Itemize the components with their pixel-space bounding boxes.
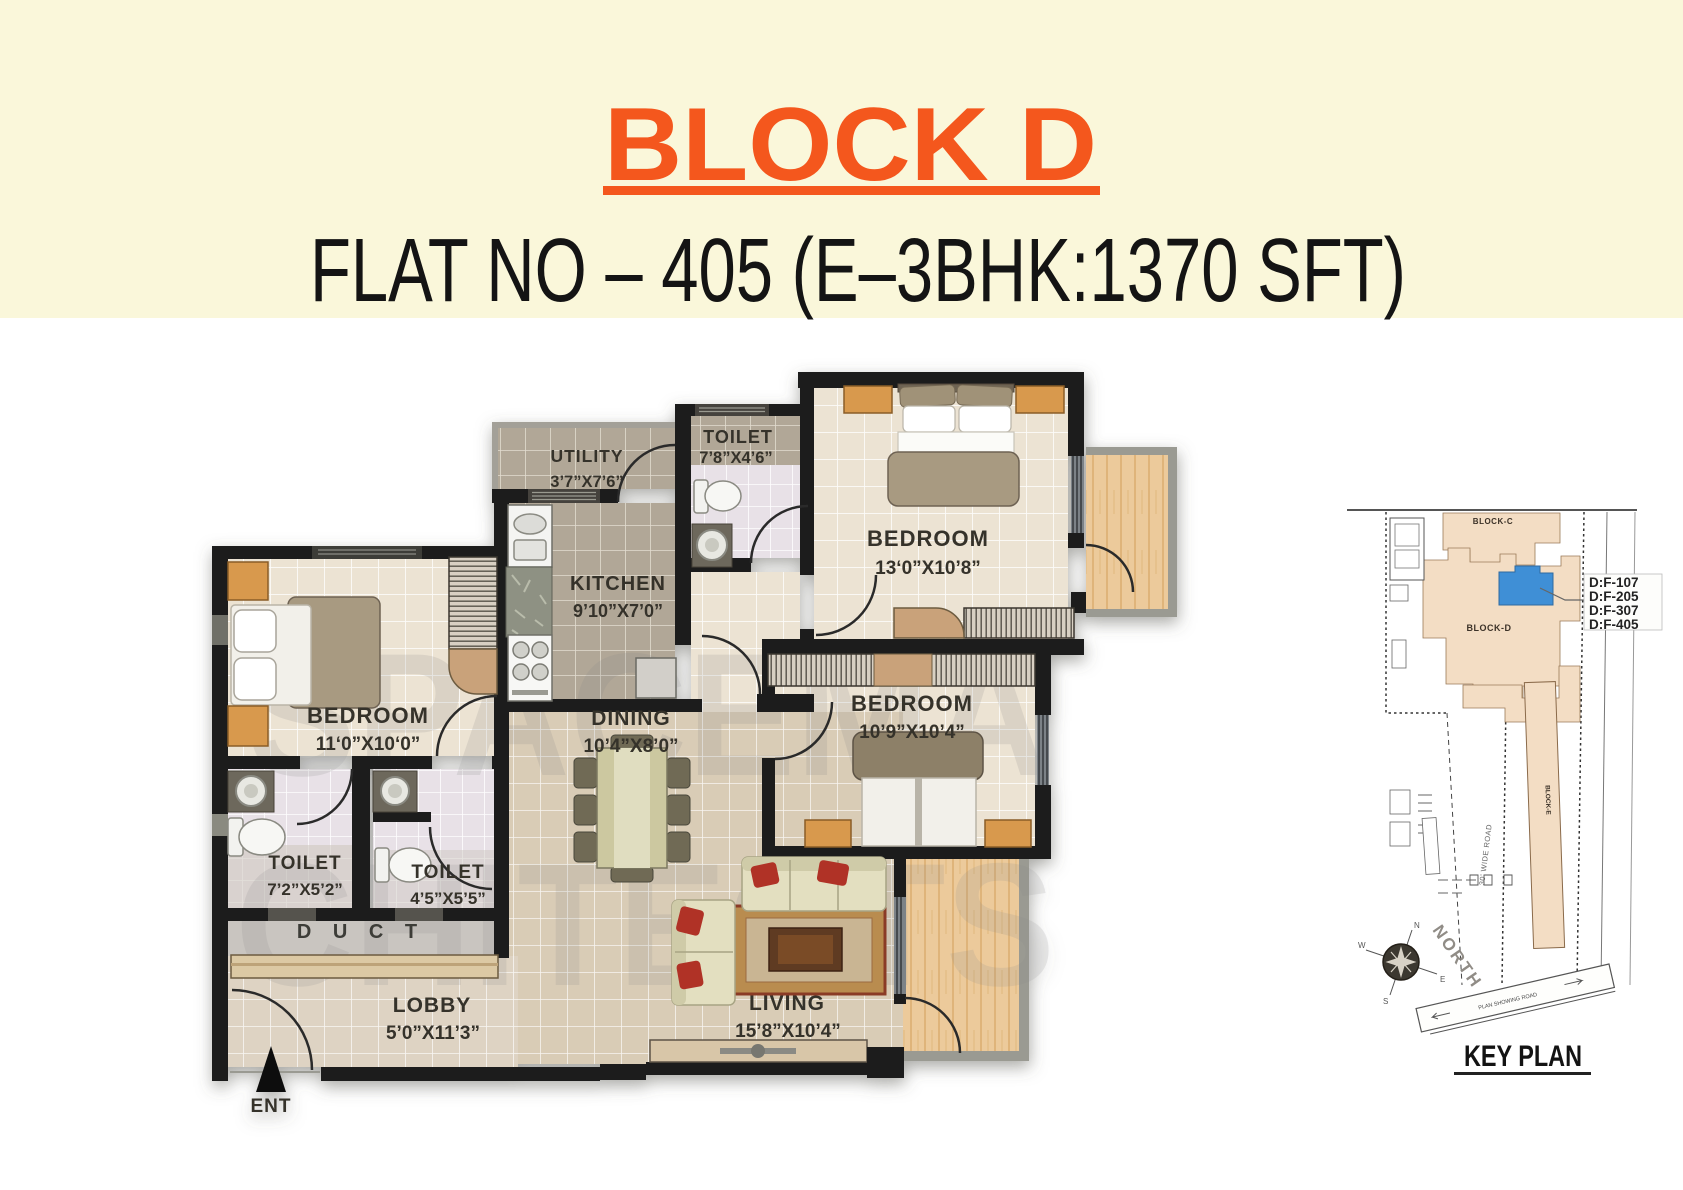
svg-text:BEDROOM: BEDROOM bbox=[851, 691, 973, 716]
svg-text:D:F-205: D:F-205 bbox=[1589, 589, 1639, 604]
svg-text:D:F-405: D:F-405 bbox=[1589, 617, 1639, 632]
svg-text:NORTH: NORTH bbox=[1429, 921, 1486, 992]
svg-text:BLOCK-E: BLOCK-E bbox=[1543, 785, 1551, 815]
svg-text:BEDROOM: BEDROOM bbox=[867, 526, 989, 551]
svg-text:4’5”X5’5”: 4’5”X5’5” bbox=[410, 889, 486, 908]
svg-text:W: W bbox=[1358, 941, 1366, 950]
svg-text:15’8”X10’4”: 15’8”X10’4” bbox=[735, 1021, 841, 1042]
svg-text:11‘0”X10‘0”: 11‘0”X10‘0” bbox=[316, 734, 421, 755]
svg-text:D U C T: D U C T bbox=[297, 921, 425, 943]
svg-text:S: S bbox=[1383, 997, 1388, 1006]
svg-text:9’10”X7’0”: 9’10”X7’0” bbox=[573, 601, 663, 621]
svg-text:BLOCK-C: BLOCK-C bbox=[1473, 517, 1513, 526]
svg-text:D:F-107: D:F-107 bbox=[1589, 575, 1639, 590]
svg-text:UTILITY: UTILITY bbox=[550, 446, 623, 466]
svg-text:E: E bbox=[1440, 975, 1445, 984]
svg-text:BLOCK D: BLOCK D bbox=[604, 87, 1097, 203]
svg-text:7’2”X5’2”: 7’2”X5’2” bbox=[267, 880, 343, 899]
svg-text:3’7”X7’6”: 3’7”X7’6” bbox=[550, 473, 623, 491]
svg-text:TOILET: TOILET bbox=[268, 853, 341, 874]
svg-text:KEY PLAN: KEY PLAN bbox=[1464, 1040, 1582, 1073]
svg-text:TOILET: TOILET bbox=[411, 862, 484, 883]
svg-text:KITCHEN: KITCHEN bbox=[570, 573, 666, 595]
svg-text:10’4”X8’0”: 10’4”X8’0” bbox=[583, 736, 678, 757]
svg-text:ENT: ENT bbox=[251, 1096, 292, 1117]
svg-text:30’ WIDE ROAD: 30’ WIDE ROAD bbox=[1477, 823, 1493, 885]
svg-text:DINING: DINING bbox=[591, 707, 671, 730]
svg-text:N: N bbox=[1414, 921, 1420, 930]
svg-text:TOILET: TOILET bbox=[703, 427, 773, 447]
svg-text:D:F-307: D:F-307 bbox=[1589, 603, 1639, 618]
svg-text:7’8”X4’6”: 7’8”X4’6” bbox=[699, 449, 772, 467]
svg-text:10’9”X10’4”: 10’9”X10’4” bbox=[859, 722, 965, 743]
svg-text:BLOCK-D: BLOCK-D bbox=[1467, 623, 1512, 633]
svg-text:13‘0”X10’8”: 13‘0”X10’8” bbox=[875, 558, 981, 579]
svg-text:5’0”X11’3”: 5’0”X11’3” bbox=[386, 1023, 480, 1044]
svg-text:FLAT NO – 405 (E–3BHK:1370 SFT: FLAT NO – 405 (E–3BHK:1370 SFT) bbox=[310, 221, 1406, 321]
svg-text:LOBBY: LOBBY bbox=[393, 994, 472, 1017]
svg-text:LIVING: LIVING bbox=[749, 992, 825, 1015]
svg-text:BEDROOM: BEDROOM bbox=[307, 703, 429, 728]
